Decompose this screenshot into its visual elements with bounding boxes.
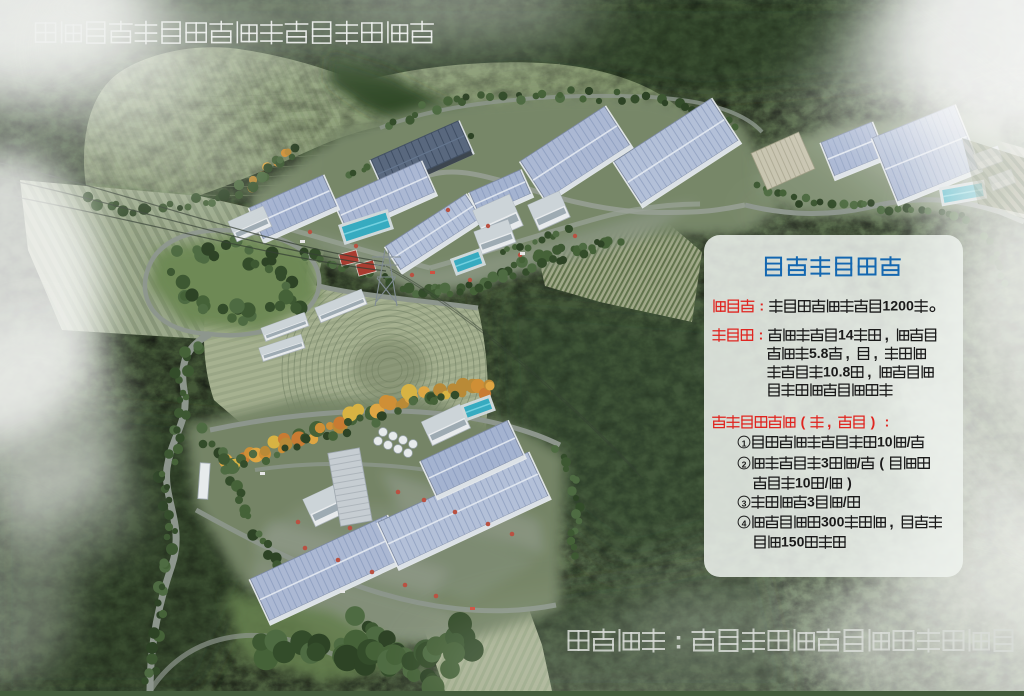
svg-text:/: /: [857, 455, 861, 471]
svg-text:14: 14: [838, 327, 854, 343]
svg-text:300: 300: [821, 514, 845, 530]
svg-text:/: /: [825, 475, 829, 491]
svg-text:10: 10: [877, 434, 893, 450]
svg-text:(: (: [801, 414, 806, 430]
svg-text:/: /: [907, 434, 911, 450]
svg-text::: :: [885, 414, 890, 430]
svg-text:2: 2: [742, 460, 747, 470]
svg-text::: :: [674, 627, 682, 655]
svg-text:): ): [871, 414, 876, 430]
svg-text:,: ,: [867, 364, 871, 381]
svg-text:3: 3: [821, 455, 829, 471]
svg-text:(: (: [879, 455, 884, 471]
svg-text:5.8: 5.8: [809, 345, 829, 361]
svg-text::: :: [759, 299, 764, 315]
svg-text:,: ,: [846, 345, 850, 362]
svg-text:3: 3: [807, 494, 815, 510]
svg-text::: :: [759, 327, 764, 343]
svg-text:4: 4: [742, 519, 747, 529]
svg-text:10.8: 10.8: [823, 364, 850, 380]
svg-text:,: ,: [889, 514, 893, 531]
svg-text:,: ,: [885, 327, 889, 344]
svg-text:,: ,: [874, 345, 878, 362]
svg-text:,: ,: [827, 414, 831, 431]
svg-text:10: 10: [795, 475, 811, 491]
svg-text:1: 1: [742, 439, 747, 449]
svg-text:150: 150: [781, 534, 805, 550]
svg-text:3: 3: [742, 499, 747, 509]
svg-text:): ): [847, 475, 852, 491]
svg-text:/: /: [843, 494, 847, 510]
svg-text:1200: 1200: [882, 299, 914, 315]
